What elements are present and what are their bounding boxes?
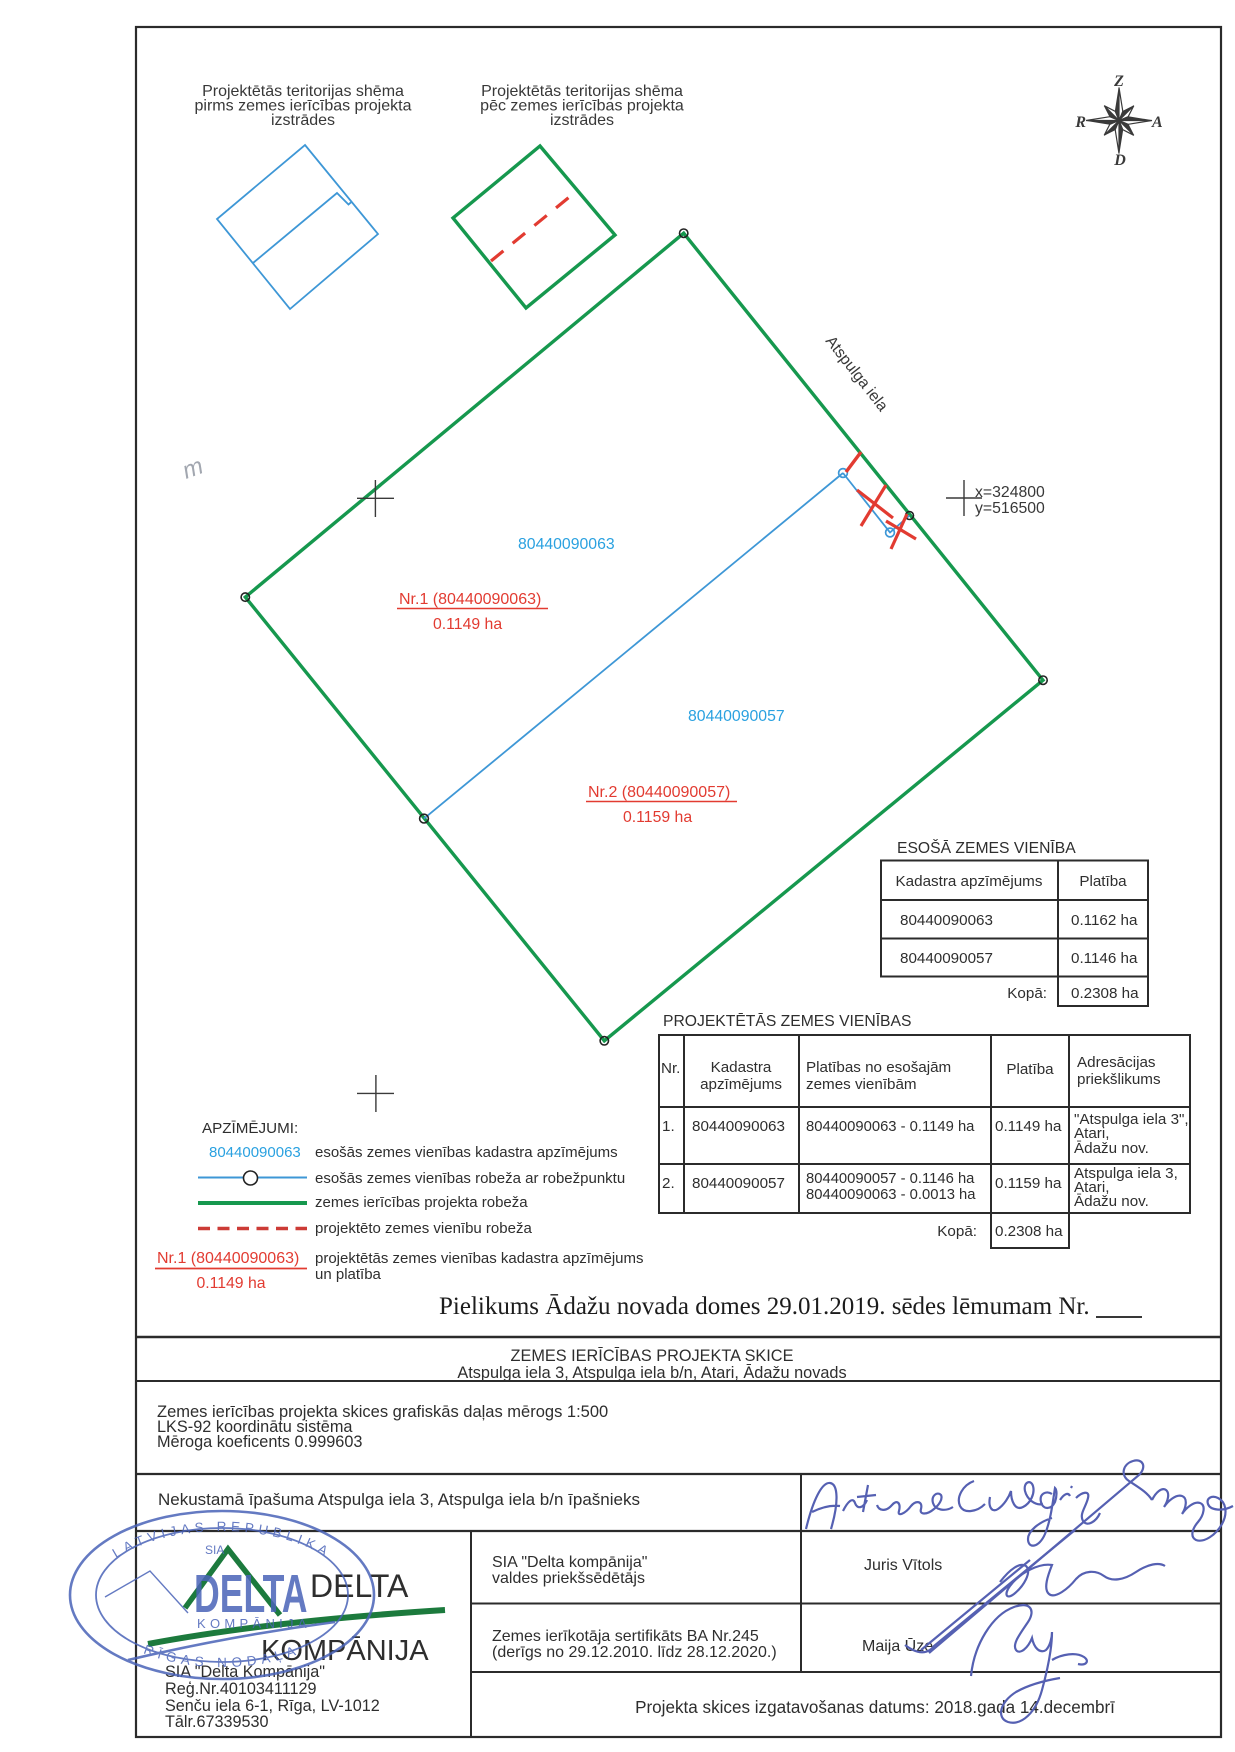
svg-text:Ādažu nov.: Ādažu nov. bbox=[1074, 1140, 1149, 1157]
svg-text:Ādažu nov.: Ādažu nov. bbox=[1074, 1193, 1149, 1210]
svg-text:1.: 1. bbox=[662, 1118, 675, 1135]
svg-text:priekšlikums: priekšlikums bbox=[1077, 1071, 1161, 1088]
svg-text:SIA "Delta kompānija": SIA "Delta kompānija" bbox=[492, 1554, 647, 1571]
svg-text:Kadastra: Kadastra bbox=[711, 1059, 772, 1076]
svg-text:ESOŠĀ ZEMES VIENĪBA: ESOŠĀ ZEMES VIENĪBA bbox=[897, 838, 1076, 857]
svg-text:Platības no esošajām: Platības no esošajām bbox=[806, 1059, 951, 1076]
svg-text:0.1162 ha: 0.1162 ha bbox=[1071, 912, 1138, 929]
svg-text:Nekustamā īpašuma Atspulga iel: Nekustamā īpašuma Atspulga iela 3, Atspu… bbox=[158, 1490, 640, 1509]
svg-text:80440090063: 80440090063 bbox=[692, 1118, 785, 1135]
svg-text:Adresācijas: Adresācijas bbox=[1077, 1054, 1156, 1071]
svg-text:Kopā:: Kopā: bbox=[1007, 985, 1047, 1002]
svg-text:Pielikums Ādažu novada domes 2: Pielikums Ādažu novada domes 29.01.2019.… bbox=[439, 1293, 1090, 1320]
svg-text:Z: Z bbox=[1113, 73, 1124, 90]
svg-text:2.: 2. bbox=[662, 1175, 675, 1192]
svg-text:esošās zemes vienības kadastra: esošās zemes vienības kadastra apzīmējum… bbox=[315, 1144, 618, 1161]
svg-text:esošās zemes vienības robeža a: esošās zemes vienības robeža ar robežpun… bbox=[315, 1170, 625, 1187]
svg-text:projektētās zemes vienības kad: projektētās zemes vienības kadastra apzī… bbox=[315, 1250, 643, 1267]
svg-text:Juris Vītols: Juris Vītols bbox=[864, 1557, 942, 1574]
svg-text:80440090057 - 0.1146 ha: 80440090057 - 0.1146 ha bbox=[806, 1171, 975, 1187]
svg-text:0.1159 ha: 0.1159 ha bbox=[623, 809, 692, 826]
svg-text:Nr.: Nr. bbox=[661, 1060, 680, 1077]
svg-text:0.1149 ha: 0.1149 ha bbox=[433, 616, 502, 633]
svg-text:Nr.1 (80440090063): Nr.1 (80440090063) bbox=[157, 1250, 299, 1267]
svg-text:80440090063 - 0.1149 ha: 80440090063 - 0.1149 ha bbox=[806, 1119, 975, 1135]
svg-text:un platība: un platība bbox=[315, 1266, 382, 1283]
svg-text:Mēroga koeficents 0.999603: Mēroga koeficents 0.999603 bbox=[157, 1433, 362, 1451]
svg-text:0.2308 ha: 0.2308 ha bbox=[1071, 985, 1139, 1002]
svg-text:80440090057: 80440090057 bbox=[692, 1175, 785, 1192]
svg-text:y=516500: y=516500 bbox=[975, 500, 1045, 517]
svg-text:Platība: Platība bbox=[1006, 1061, 1054, 1078]
svg-text:A: A bbox=[1151, 114, 1163, 131]
svg-text:0.1149 ha: 0.1149 ha bbox=[196, 1275, 265, 1292]
svg-text:izstrādes: izstrādes bbox=[550, 112, 614, 129]
svg-text:izstrādes: izstrādes bbox=[271, 112, 335, 129]
svg-text:Nr.1 (80440090063): Nr.1 (80440090063) bbox=[399, 591, 541, 608]
svg-text:Kopā:: Kopā: bbox=[937, 1223, 977, 1240]
svg-text:zemes ierīcības projekta robež: zemes ierīcības projekta robeža bbox=[315, 1194, 528, 1211]
svg-text:Atspulga iela 3, Atspulga iela: Atspulga iela 3, Atspulga iela b/n, Atar… bbox=[457, 1364, 846, 1382]
svg-text:Nr.2 (80440090057): Nr.2 (80440090057) bbox=[588, 784, 730, 801]
svg-text:0.1149 ha: 0.1149 ha bbox=[995, 1118, 1062, 1135]
svg-text:80440090063: 80440090063 bbox=[900, 912, 993, 929]
svg-text:apzīmējums: apzīmējums bbox=[700, 1076, 782, 1093]
svg-text:0.1146 ha: 0.1146 ha bbox=[1071, 950, 1138, 967]
svg-text:R: R bbox=[1074, 114, 1086, 131]
svg-text:m: m bbox=[179, 452, 207, 484]
svg-text:80440090063: 80440090063 bbox=[518, 536, 615, 553]
svg-text:Tālr.67339530: Tālr.67339530 bbox=[165, 1713, 269, 1731]
svg-text:projektēto zemes vienību robež: projektēto zemes vienību robeža bbox=[315, 1220, 532, 1237]
svg-text:Projekta skices izgatavošanas: Projekta skices izgatavošanas datums: 20… bbox=[635, 1698, 1115, 1717]
svg-text:Zemes ierīkotāja sertifikāts B: Zemes ierīkotāja sertifikāts BA Nr.245 bbox=[492, 1628, 759, 1645]
svg-text:80440090057: 80440090057 bbox=[900, 950, 993, 967]
svg-text:ZEMES IERĪCĪBAS PROJEKTA SKICE: ZEMES IERĪCĪBAS PROJEKTA SKICE bbox=[511, 1347, 794, 1365]
svg-text:Reģ.Nr.40103411129: Reģ.Nr.40103411129 bbox=[165, 1680, 317, 1698]
svg-text:x=324800: x=324800 bbox=[975, 484, 1045, 501]
svg-text:D: D bbox=[1113, 152, 1126, 169]
svg-text:Atspulga iela: Atspulga iela bbox=[822, 333, 891, 415]
svg-text:0.2308 ha: 0.2308 ha bbox=[995, 1223, 1063, 1240]
svg-text:PROJEKTĒTĀS ZEMES VIENĪBAS: PROJEKTĒTĀS ZEMES VIENĪBAS bbox=[663, 1012, 911, 1030]
svg-text:Platība: Platība bbox=[1079, 873, 1127, 890]
svg-text:APZĪMĒJUMI:: APZĪMĒJUMI: bbox=[202, 1120, 298, 1137]
svg-text:zemes vienībām: zemes vienībām bbox=[806, 1076, 917, 1093]
svg-text:SIA: SIA bbox=[205, 1543, 224, 1557]
svg-text:80440090057: 80440090057 bbox=[688, 708, 785, 725]
svg-text:Kadastra apzīmējums: Kadastra apzīmējums bbox=[896, 873, 1043, 890]
svg-text:(derīgs no 29.12.2010. līdz 28: (derīgs no 29.12.2010. līdz 28.12.2020.) bbox=[492, 1644, 777, 1661]
svg-text:valdes priekšsēdētājs: valdes priekšsēdētājs bbox=[492, 1570, 645, 1587]
svg-text:80440090063: 80440090063 bbox=[209, 1144, 301, 1161]
svg-text:DELTA: DELTA bbox=[310, 1568, 409, 1604]
svg-text:0.1159 ha: 0.1159 ha bbox=[995, 1175, 1062, 1192]
svg-text:80440090063 - 0.0013 ha: 80440090063 - 0.0013 ha bbox=[806, 1187, 976, 1203]
svg-text:DELTA: DELTA bbox=[194, 1564, 308, 1624]
